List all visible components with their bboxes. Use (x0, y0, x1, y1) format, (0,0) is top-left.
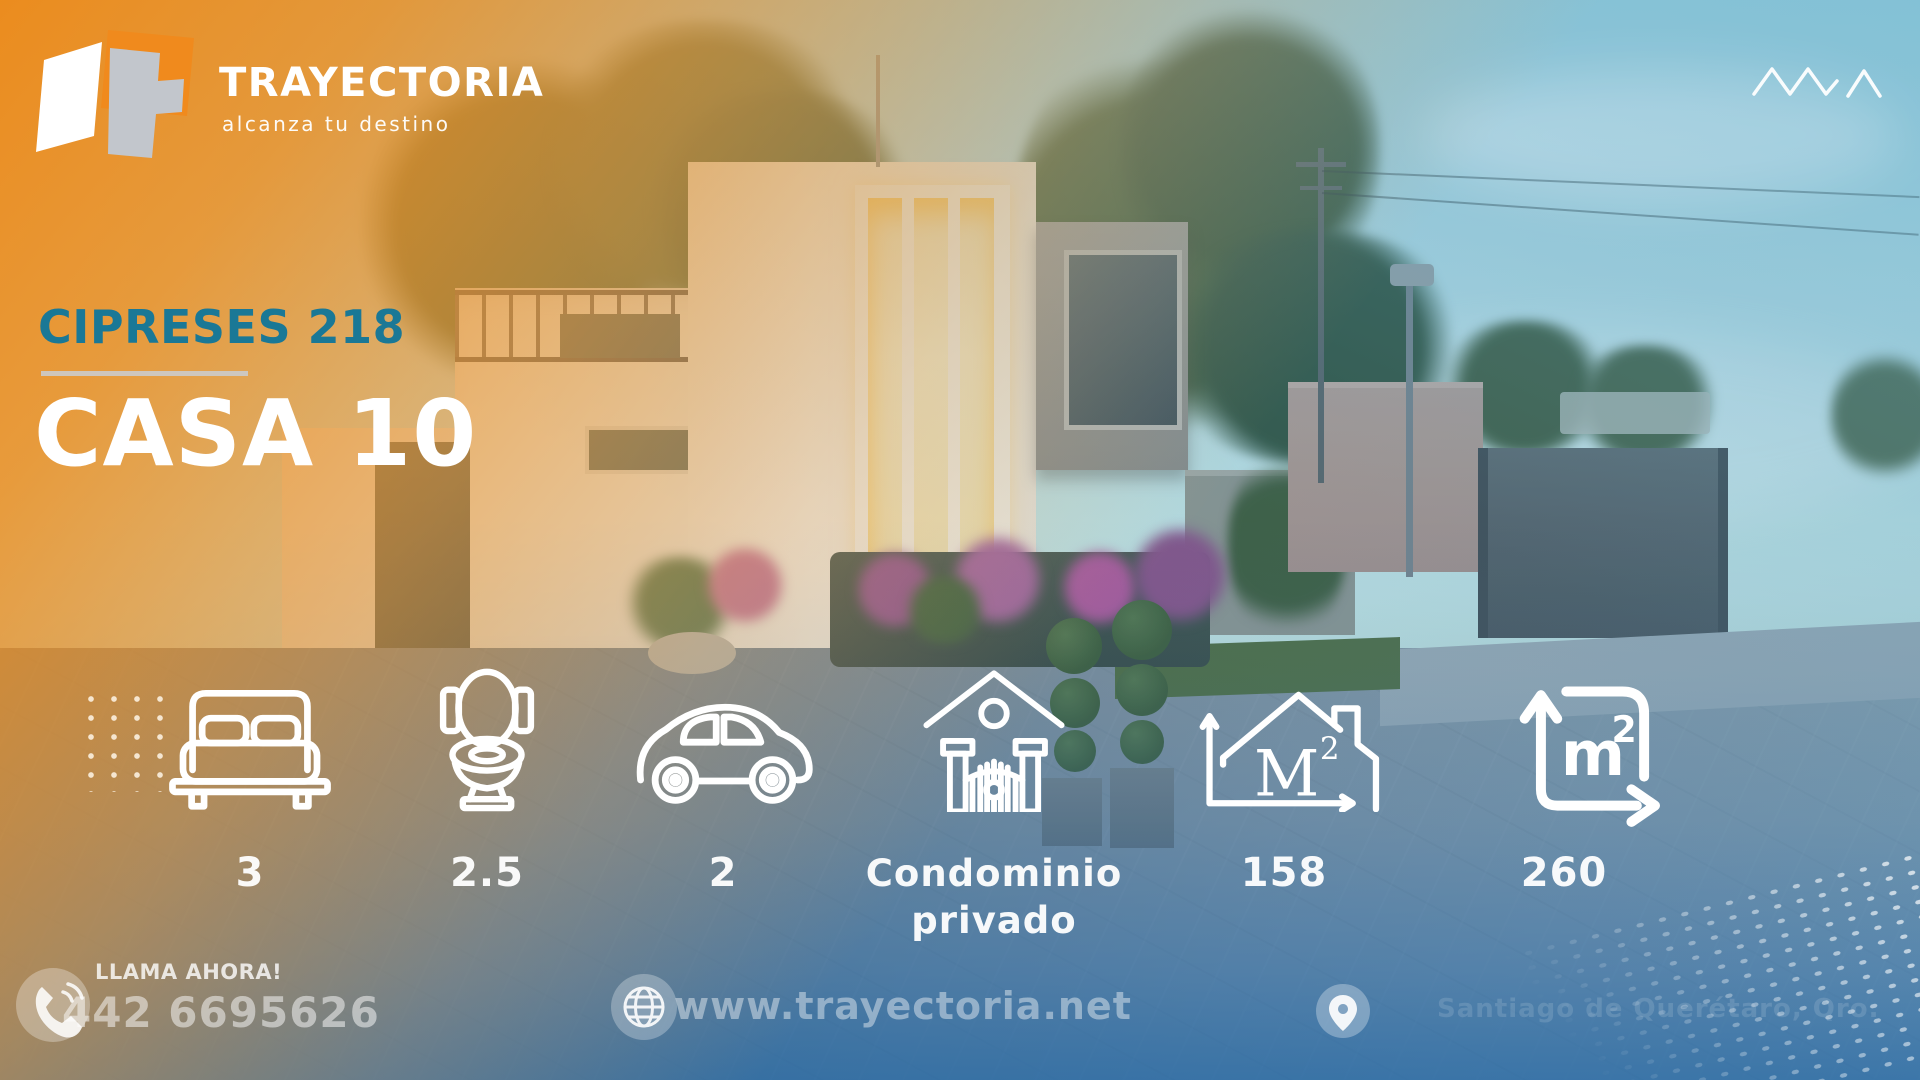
brand-name: TRAYECTORIA (219, 60, 544, 106)
title-underline (41, 371, 248, 376)
land-area-value: 260 (1482, 850, 1647, 896)
car-icon (631, 684, 816, 812)
content-layer: TRAYECTORIA alcanza tu destino CIPRESES … (0, 0, 1920, 1080)
contact-website-group: www.trayectoria.net (610, 970, 1130, 1060)
construction-area-value: 158 (1179, 850, 1389, 896)
gate-icon (922, 664, 1067, 812)
feature-land-area: m 2 260 (1506, 662, 1671, 896)
feature-construction-area: M 2 158 (1195, 662, 1405, 896)
location-pin-icon (1315, 983, 1371, 1039)
mountain-zigzag-icon (1752, 56, 1884, 102)
land-area-sup: 2 (1612, 708, 1637, 751)
call-cta: LLAMA AHORA! (95, 960, 282, 984)
house-area-letter: M (1254, 738, 1319, 812)
globe-icon (610, 973, 678, 1041)
condominium-label: Condominio privado (829, 850, 1159, 945)
toilet-icon (430, 664, 545, 812)
feature-condominium: Condominio privado (912, 662, 1077, 945)
contact-location-group: Santiago de Querétaro, Qro. (1315, 980, 1855, 1060)
feature-bathrooms: 2.5 (430, 662, 545, 896)
house-area-icon: M 2 (1195, 662, 1405, 812)
unit-name: CASA 10 (34, 386, 477, 483)
feature-parking: 2 (631, 662, 816, 896)
bedrooms-count: 3 (160, 850, 340, 896)
address-text: Santiago de Querétaro, Qro. (1437, 994, 1879, 1024)
bed-icon (160, 678, 340, 812)
website-url: www.trayectoria.net (674, 984, 1132, 1028)
land-area-icon: m 2 (1506, 668, 1671, 840)
bathrooms-count: 2.5 (430, 850, 545, 896)
parking-count: 2 (631, 850, 816, 896)
feature-bedrooms: 3 (160, 662, 340, 896)
development-name: CIPRESES 218 (38, 300, 405, 354)
house-area-sup: 2 (1320, 731, 1340, 767)
brand-tagline: alcanza tu destino (222, 112, 450, 136)
phone-number: 442 6695626 (62, 988, 380, 1037)
contact-phone-group: LLAMA AHORA! 442 6695626 (15, 958, 375, 1068)
flyer-canvas: TRAYECTORIA alcanza tu destino CIPRESES … (0, 0, 1920, 1080)
trayectoria-logo-icon (36, 26, 196, 158)
